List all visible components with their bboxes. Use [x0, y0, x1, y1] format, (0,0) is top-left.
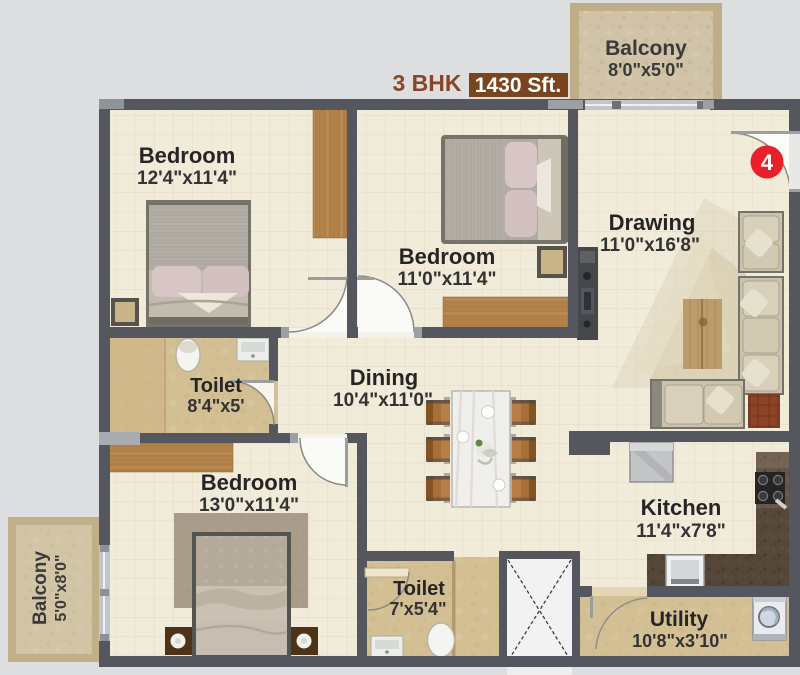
svg-text:11'0"x16'8": 11'0"x16'8"	[600, 235, 700, 256]
svg-text:10'8"x3'10": 10'8"x3'10"	[632, 631, 728, 651]
svg-text:Bedroom: Bedroom	[201, 470, 298, 495]
svg-text:Utility: Utility	[650, 608, 709, 631]
svg-text:1430 Sft.: 1430 Sft.	[475, 74, 561, 97]
svg-text:11'0"x11'4": 11'0"x11'4"	[398, 269, 497, 290]
svg-text:Toilet: Toilet	[190, 375, 242, 397]
svg-text:8'0"x5'0": 8'0"x5'0"	[608, 60, 684, 80]
svg-text:Drawing: Drawing	[609, 210, 696, 235]
svg-text:Bedroom: Bedroom	[399, 244, 496, 269]
svg-text:12'4"x11'4": 12'4"x11'4"	[137, 168, 237, 189]
svg-text:Balcony: Balcony	[605, 37, 687, 60]
svg-text:Toilet: Toilet	[393, 578, 445, 600]
svg-text:Bedroom: Bedroom	[139, 143, 236, 168]
svg-text:3 BHK: 3 BHK	[392, 70, 461, 96]
svg-text:7'x5'4": 7'x5'4"	[389, 599, 446, 619]
svg-text:Balcony: Balcony	[30, 551, 51, 625]
svg-text:8'4"x5': 8'4"x5'	[187, 396, 244, 416]
svg-text:Dining: Dining	[350, 365, 418, 390]
svg-text:5'0"x8'0": 5'0"x8'0"	[53, 554, 70, 621]
svg-text:11'4"x7'8": 11'4"x7'8"	[636, 521, 725, 542]
svg-text:4: 4	[761, 150, 774, 175]
svg-text:Kitchen: Kitchen	[641, 495, 722, 520]
svg-text:10'4"x11'0": 10'4"x11'0"	[333, 390, 433, 411]
svg-text:13'0"x11'4": 13'0"x11'4"	[199, 495, 299, 516]
